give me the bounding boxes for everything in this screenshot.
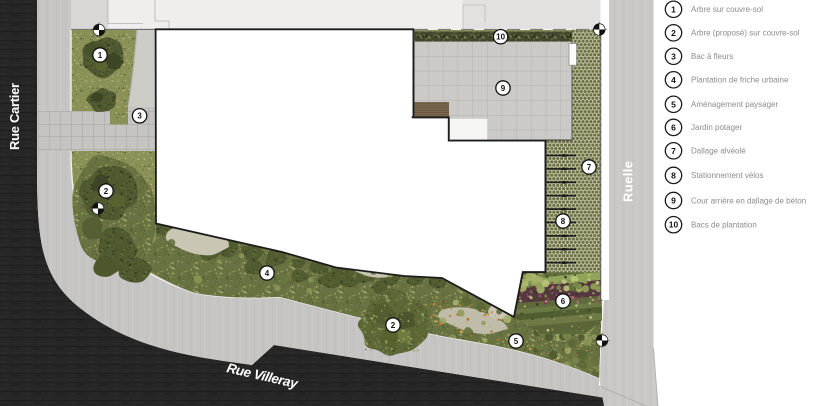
svg-text:Jardin potager: Jardin potager (691, 123, 742, 132)
svg-text:Arbre sur couvre-sol: Arbre sur couvre-sol (691, 5, 763, 14)
svg-text:Rue Cartier: Rue Cartier (7, 83, 22, 150)
svg-text:Bac à fleurs: Bac à fleurs (691, 52, 733, 61)
svg-text:7: 7 (671, 146, 676, 156)
svg-text:3: 3 (137, 112, 142, 121)
svg-text:Bacs de plantation: Bacs de plantation (691, 221, 757, 230)
svg-text:6: 6 (671, 122, 676, 132)
svg-text:1: 1 (671, 4, 676, 14)
svg-text:Cour arrière en dallage de bét: Cour arrière en dallage de béton (691, 196, 806, 205)
svg-text:10: 10 (669, 220, 679, 230)
svg-text:Dallage alvéolé: Dallage alvéolé (691, 147, 746, 156)
svg-text:10: 10 (496, 33, 505, 42)
svg-text:8: 8 (671, 170, 676, 180)
svg-text:Plantation de friche urbaine: Plantation de friche urbaine (691, 76, 789, 85)
svg-text:Ruelle: Ruelle (621, 161, 636, 202)
svg-text:4: 4 (265, 269, 270, 278)
svg-text:4: 4 (671, 75, 676, 85)
svg-text:Arbre (proposé) sur couvre-sol: Arbre (proposé) sur couvre-sol (691, 29, 800, 38)
svg-text:3: 3 (671, 51, 676, 61)
svg-text:6: 6 (561, 297, 566, 306)
svg-text:2: 2 (104, 187, 109, 196)
svg-text:7: 7 (587, 163, 592, 172)
svg-text:9: 9 (671, 196, 676, 206)
svg-text:Stationnement vélos: Stationnement vélos (691, 171, 764, 180)
svg-text:9: 9 (501, 84, 506, 93)
svg-text:5: 5 (671, 99, 676, 109)
svg-text:2: 2 (671, 28, 676, 38)
svg-text:5: 5 (514, 337, 519, 346)
svg-text:8: 8 (561, 217, 566, 226)
svg-text:Aménagement paysager: Aménagement paysager (691, 100, 779, 109)
svg-text:1: 1 (98, 51, 103, 60)
svg-text:2: 2 (391, 321, 396, 330)
